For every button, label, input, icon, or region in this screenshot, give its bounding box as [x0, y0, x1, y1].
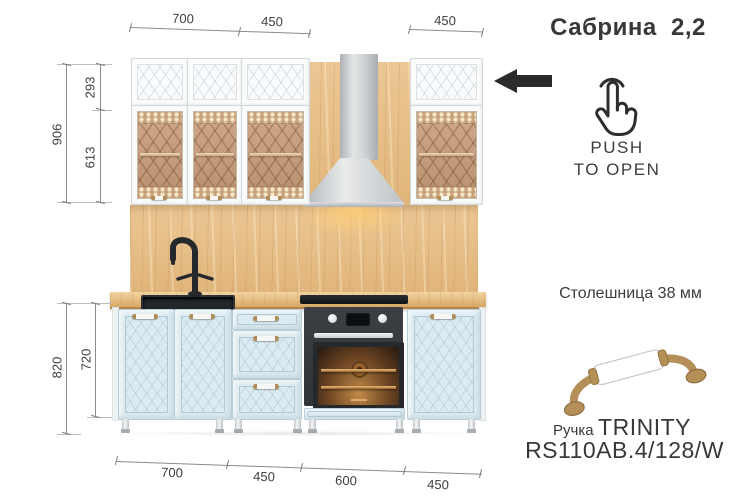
oven-shelf — [321, 369, 396, 372]
handle-model: RS110AB.4/128/W — [522, 437, 727, 464]
dim-line-720 — [95, 303, 96, 417]
oven-knob-right — [378, 314, 387, 323]
dim-bottom-450-right: 450 — [418, 476, 458, 492]
oven-handle-bar — [314, 333, 393, 338]
glass-door-2 — [187, 105, 243, 205]
upper-door-4-panel — [416, 64, 477, 100]
cooktop — [300, 295, 408, 304]
base-door-1-panel — [125, 316, 168, 413]
hood-light-glow — [300, 205, 408, 239]
glass-door-2-glass — [193, 111, 237, 199]
dim-906: 906 — [50, 115, 65, 155]
hood-lip — [304, 202, 404, 207]
drawer-handle — [253, 316, 279, 321]
left-arrow-shaft — [516, 75, 552, 87]
oven-display — [346, 313, 370, 326]
push-to-open-line1: PUSH — [562, 138, 672, 158]
drawer-handle — [253, 384, 279, 389]
glass-shelf — [419, 153, 474, 156]
drawer-3-panel — [239, 386, 295, 413]
dim-bottom-450-drawers: 450 — [244, 468, 284, 484]
drawer-handle — [253, 336, 279, 341]
dim-bottom-700: 700 — [152, 464, 192, 480]
upper-handle — [151, 196, 167, 200]
upper-handle — [437, 196, 453, 200]
oven-base-drawer — [304, 408, 405, 420]
base-door-2-panel — [181, 316, 225, 413]
upper-door-3 — [241, 58, 310, 106]
glass-shelf — [140, 153, 180, 156]
glass-shelf — [196, 153, 234, 156]
oven-logo — [351, 399, 367, 401]
upper-door-3-panel — [247, 64, 304, 100]
oven — [304, 307, 403, 406]
dim-bottom-600: 600 — [326, 472, 366, 488]
upper-handle — [206, 196, 222, 200]
product-sheet: 700 450 450 906 293 613 820 720 700 450 … — [0, 0, 748, 499]
oven-knob-left — [328, 314, 337, 323]
oven-shelf — [321, 386, 396, 389]
drawer-2-panel — [239, 337, 295, 372]
base-door-2 — [174, 309, 232, 420]
dim-293: 293 — [83, 68, 98, 108]
floor-shadow — [116, 431, 482, 436]
faucet — [150, 230, 222, 298]
dim-820: 820 — [50, 348, 65, 388]
glass-door-4 — [410, 105, 483, 205]
upper-door-2-panel — [193, 64, 237, 100]
dim-line-820 — [66, 303, 67, 434]
base-handle — [189, 314, 215, 319]
push-to-open-hand-icon — [584, 72, 646, 138]
glass-door-1 — [131, 105, 189, 205]
upper-door-4 — [410, 58, 483, 106]
dim-line-293-613 — [100, 65, 101, 203]
upper-handle — [266, 196, 282, 200]
base-door-3 — [407, 309, 481, 420]
dim-line-906 — [66, 65, 67, 203]
upper-door-1-panel — [137, 64, 183, 100]
upper-door-2 — [187, 58, 243, 106]
dim-top-700: 700 — [163, 10, 203, 26]
upper-door-1 — [131, 58, 189, 106]
hood-chimney — [340, 54, 378, 160]
dim-top-450-left: 450 — [252, 13, 292, 29]
glass-door-4-glass — [416, 111, 477, 199]
oven-door-glass — [313, 342, 404, 410]
base-handle — [132, 314, 158, 319]
dim-top-450-right: 450 — [425, 12, 465, 28]
dim-720: 720 — [79, 340, 94, 380]
left-arrow-head — [494, 69, 517, 93]
base-door-3-panel — [414, 316, 474, 413]
countertop-note: Столешница 38 мм — [538, 285, 723, 303]
glass-door-3 — [241, 105, 310, 205]
glass-door-3-glass — [247, 111, 304, 199]
base-door-1 — [118, 309, 175, 420]
product-title: Сабрина 2,2 — [528, 14, 728, 42]
base-handle — [430, 314, 456, 319]
glass-door-1-glass — [137, 111, 183, 199]
dim-613: 613 — [83, 138, 98, 178]
glass-shelf — [250, 153, 301, 156]
oven-base-drawer-panel — [307, 411, 402, 417]
push-to-open-line2: TO OPEN — [562, 160, 672, 180]
